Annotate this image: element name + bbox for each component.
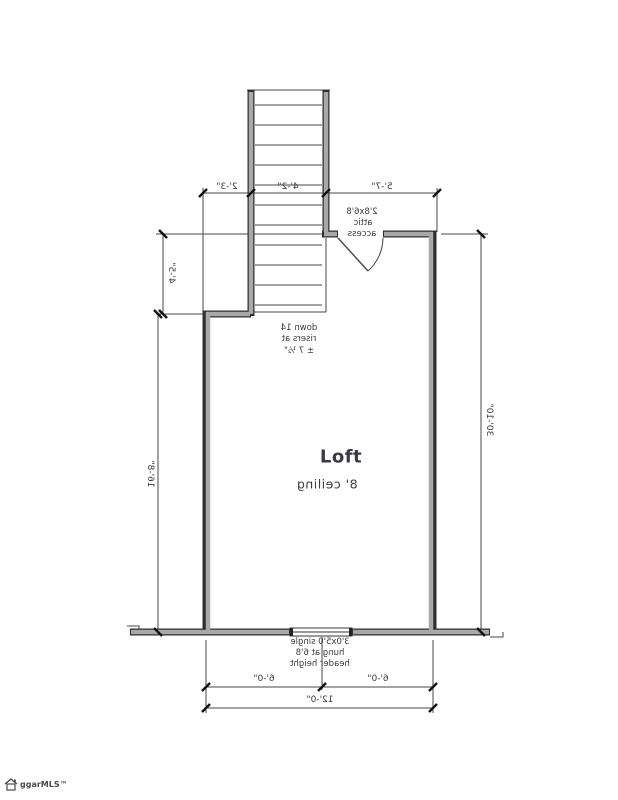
dim-left-upper-label: 4'-5" — [166, 262, 176, 283]
room-name-label: Loft — [320, 447, 362, 468]
house-icon — [4, 778, 18, 791]
left-wall — [208, 314, 250, 631]
right-wall — [384, 234, 431, 631]
dim-top-right-label: 5'-7" — [371, 182, 392, 192]
window-note-line1: 3'0x5'0 single — [290, 637, 349, 647]
dim-left-label: 16'-8" — [145, 460, 155, 487]
dim-bottom-right-half-label: 6'-0" — [367, 674, 388, 684]
floor-plan-drawing — [0, 0, 618, 800]
attic-note-line1: 2'8x6'8 — [346, 207, 377, 217]
attic-note-line2: attic — [354, 218, 373, 228]
dim-bottom-total-label: 12'-0" — [306, 695, 333, 705]
wall-break-right — [490, 632, 503, 637]
dim-top-left-label: 2'-3" — [216, 182, 237, 192]
room-ceiling-label: 8' ceiling — [296, 477, 357, 492]
dim-bottom-left-half-label: 6'-0" — [253, 674, 274, 684]
window-note-line2: hung at 6'8 — [296, 648, 345, 658]
door-swing-arc — [368, 238, 383, 271]
mls-watermark: ggarMLS™ — [4, 778, 68, 791]
window-symbol — [290, 628, 352, 636]
watermark-brand-text: ggarMLS™ — [20, 780, 68, 789]
stair-note-line2: risers at — [282, 334, 317, 344]
attic-note-line3: access — [348, 229, 377, 239]
window-note-line3: header height — [290, 659, 350, 669]
door-leaf — [338, 238, 368, 271]
dim-top-middle-label: 4'-2" — [277, 182, 298, 192]
stair-note-line3: ± 7 ½" — [284, 346, 314, 356]
stair-note-line1: down 14 — [281, 323, 317, 333]
stair-treads — [255, 105, 322, 305]
floor-plan-page: 2'-3" 4'-2" 5'-7" 4'-5" 16'-8" 30'-10" 6… — [0, 0, 618, 800]
dim-right-label: 30'-10" — [484, 404, 494, 437]
